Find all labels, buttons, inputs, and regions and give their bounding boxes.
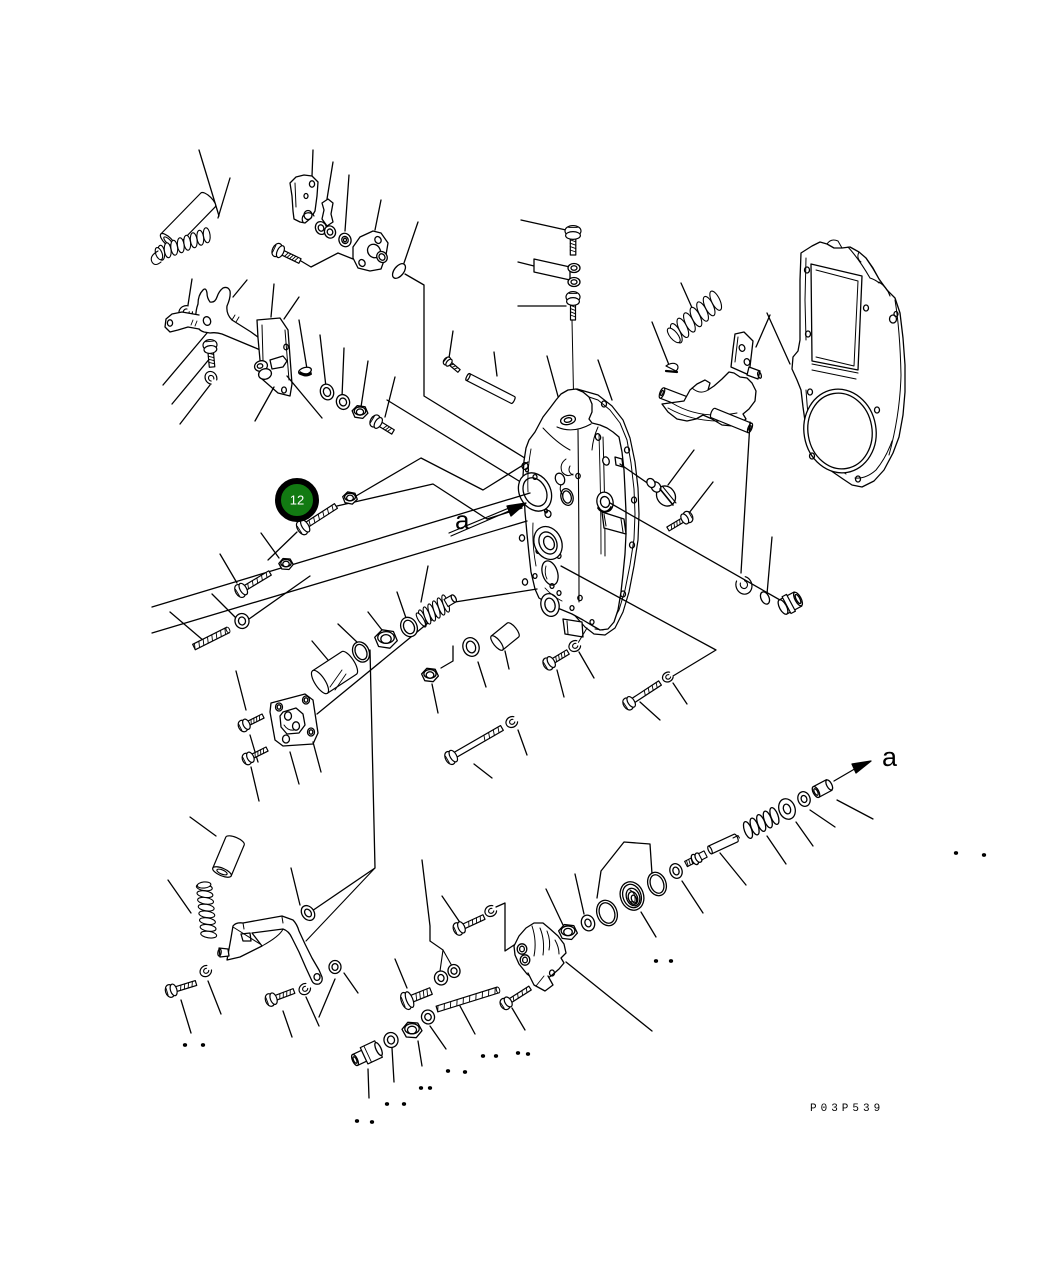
svg-text:a: a — [455, 505, 470, 535]
svg-text:a: a — [882, 742, 898, 772]
svg-text:12: 12 — [290, 493, 304, 508]
svg-text:P03P539: P03P539 — [810, 1103, 884, 1115]
